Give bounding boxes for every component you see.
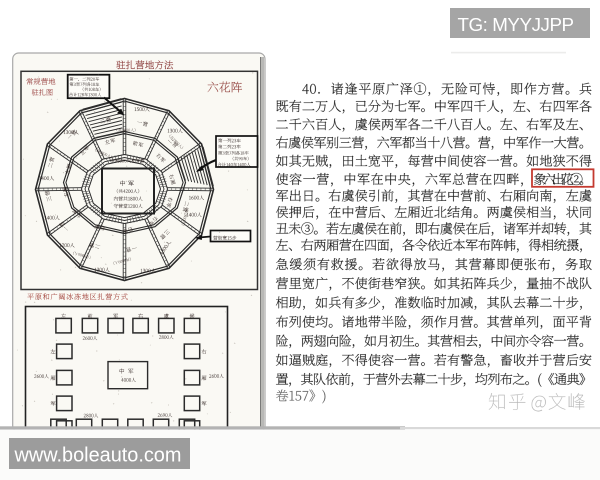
svg-text:TG: MYYJJPP: TG: MYYJJPP: [458, 14, 574, 35]
svg-text:www.boleauto.com: www.boleauto.com: [14, 445, 182, 467]
